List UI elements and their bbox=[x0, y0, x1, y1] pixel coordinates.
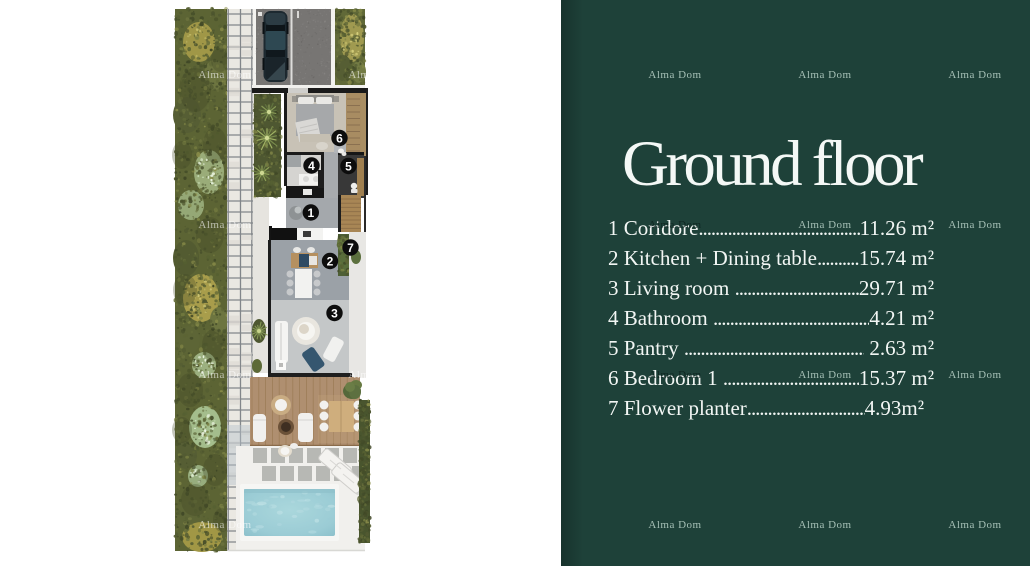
svg-text:1: 1 bbox=[307, 206, 314, 220]
svg-text:6: 6 bbox=[336, 131, 343, 145]
svg-text:2: 2 bbox=[327, 254, 334, 268]
svg-text:3: 3 bbox=[331, 306, 338, 320]
svg-text:7: 7 bbox=[347, 241, 354, 255]
svg-text:5: 5 bbox=[345, 159, 352, 173]
svg-text:4: 4 bbox=[308, 159, 315, 173]
